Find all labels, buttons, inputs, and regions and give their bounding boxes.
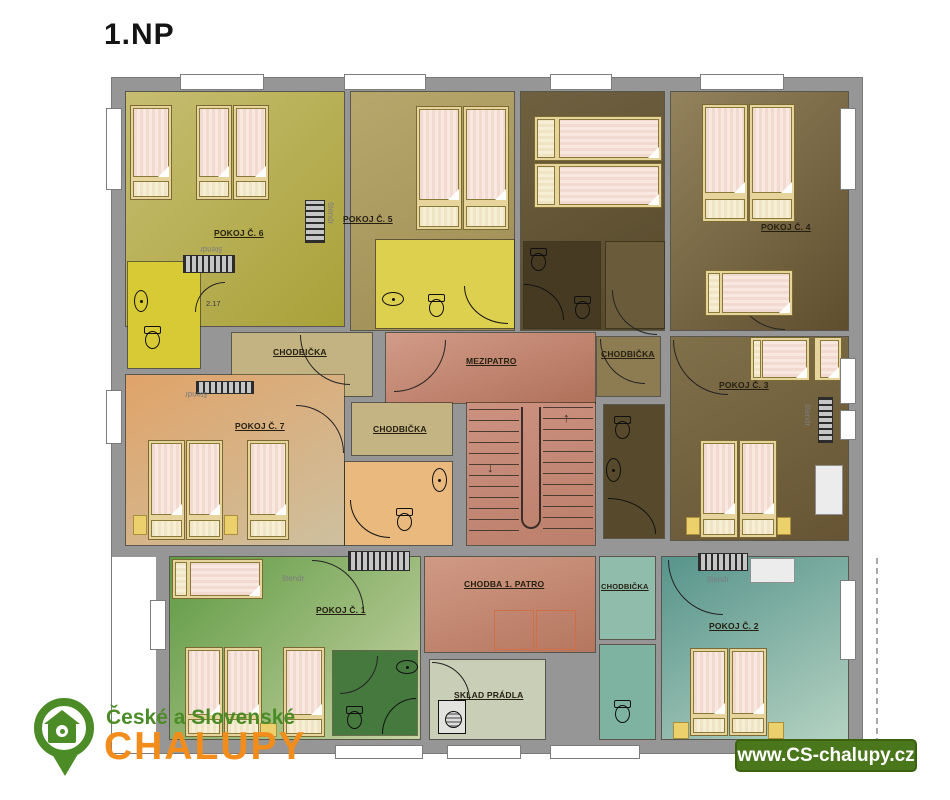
column-hatch-icon xyxy=(818,397,833,443)
toilet-icon xyxy=(574,296,590,319)
floor-plan: ↓ ↑ xyxy=(112,78,862,753)
window xyxy=(344,74,426,90)
floor-plan-page: { "title": "1.NP", "labels": { "pokoj1":… xyxy=(0,0,950,800)
bed-pillow xyxy=(224,515,238,535)
window xyxy=(840,410,856,440)
stairs-up-flight xyxy=(543,407,593,539)
bed xyxy=(814,337,842,381)
room-number: 2.17 xyxy=(206,299,221,308)
website-url-badge: www.CS-chalupy.cz xyxy=(735,739,917,772)
sink-icon xyxy=(396,660,418,674)
closet xyxy=(815,465,843,515)
company-logo: České a Slovenské CHALUPY xyxy=(26,692,306,797)
bed xyxy=(749,104,795,222)
toilet-icon xyxy=(144,326,160,349)
sink-icon xyxy=(134,290,148,312)
toilet-icon xyxy=(396,508,412,531)
window xyxy=(700,74,784,90)
label-chodbicka-right: CHODBIČKA xyxy=(601,349,655,359)
window xyxy=(106,390,122,444)
stendr-note: štendr xyxy=(803,404,812,426)
bed-pillow xyxy=(768,722,784,739)
bed xyxy=(690,648,728,736)
bathroom-pokoj-6 xyxy=(128,262,200,368)
up-arrow-icon: ↑ xyxy=(563,411,570,424)
label-mezipatro: MEZIPATRO xyxy=(466,356,517,366)
washer-icon xyxy=(438,700,466,734)
bed xyxy=(233,105,269,200)
bed xyxy=(186,440,223,540)
label-pokoj-4: POKOJ Č. 4 xyxy=(761,222,811,232)
window xyxy=(106,108,122,190)
bed-pillow xyxy=(777,517,791,535)
bed xyxy=(172,559,263,599)
toilet-icon xyxy=(428,294,444,317)
bed xyxy=(247,440,289,540)
label-pokoj-7: POKOJ Č. 7 xyxy=(235,421,285,431)
window xyxy=(840,580,856,660)
label-pokoj-1: POKOJ Č. 1 xyxy=(316,605,366,615)
sink-icon xyxy=(382,292,404,306)
locker-outline xyxy=(494,610,534,650)
wc-bottom xyxy=(600,645,655,739)
location-dot-icon xyxy=(60,729,65,734)
label-sklad: SKLAD PRÁDLA xyxy=(454,690,523,700)
stendr-note: štendr xyxy=(185,390,207,399)
label-chodbicka-center: CHODBIČKA xyxy=(373,424,427,434)
window xyxy=(447,745,521,759)
bed xyxy=(739,440,777,538)
sink-icon xyxy=(606,458,621,482)
label-chodbicka-bottom: CHODBIČKA xyxy=(601,582,649,591)
bed xyxy=(534,163,662,208)
closet xyxy=(750,558,795,583)
bed-pillow xyxy=(673,722,689,739)
toilet-icon xyxy=(614,416,630,439)
bed xyxy=(534,116,662,161)
hallway-chodbicka-bottom xyxy=(600,557,655,639)
stair-railing xyxy=(521,407,541,529)
toilet-icon xyxy=(530,248,546,271)
window xyxy=(180,74,264,90)
boundary-dashed-line xyxy=(876,558,878,754)
bed xyxy=(130,105,172,200)
column-hatch-icon xyxy=(305,200,325,243)
window xyxy=(335,745,423,759)
window xyxy=(840,108,856,190)
label-pokoj-3: POKOJ Č. 3 xyxy=(719,380,769,390)
bed xyxy=(750,337,810,381)
bed xyxy=(148,440,185,540)
down-arrow-icon: ↓ xyxy=(487,461,494,474)
column-hatch-icon xyxy=(183,255,235,273)
page-title: 1.NP xyxy=(104,18,175,52)
bed-pillow xyxy=(133,515,147,535)
logo-name: CHALUPY xyxy=(104,725,307,769)
window xyxy=(150,600,166,650)
bed xyxy=(729,648,767,736)
stendr-note: štendr xyxy=(200,245,222,254)
bed xyxy=(196,105,232,200)
column-hatch-icon xyxy=(698,553,748,571)
bed xyxy=(700,440,738,538)
sink-icon xyxy=(432,468,447,492)
stendr-note: štendr xyxy=(282,574,304,583)
column-hatch-icon xyxy=(348,551,410,571)
toilet-icon xyxy=(614,700,630,723)
website-url: www.CS-chalupy.cz xyxy=(737,745,914,767)
stendr-note: štendr xyxy=(326,202,335,224)
bed xyxy=(702,104,748,222)
window xyxy=(550,745,640,759)
label-chodba: CHODBA 1. PATRO xyxy=(464,579,544,589)
window xyxy=(840,358,856,404)
bed xyxy=(416,106,462,230)
label-chodbicka-left: CHODBIČKA xyxy=(273,347,327,357)
bed xyxy=(463,106,509,230)
label-pokoj-2: POKOJ Č. 2 xyxy=(709,621,759,631)
label-pokoj-6: POKOJ Č. 6 xyxy=(214,228,264,238)
window xyxy=(550,74,612,90)
stairs-down-flight xyxy=(469,409,519,537)
label-pokoj-5: POKOJ Č. 5 xyxy=(343,214,393,224)
stendr-note: štendr xyxy=(707,575,729,584)
bed-pillow xyxy=(686,517,700,535)
toilet-icon xyxy=(346,706,362,729)
locker-outline xyxy=(536,610,576,650)
bed xyxy=(705,270,793,316)
house-icon xyxy=(44,710,80,724)
